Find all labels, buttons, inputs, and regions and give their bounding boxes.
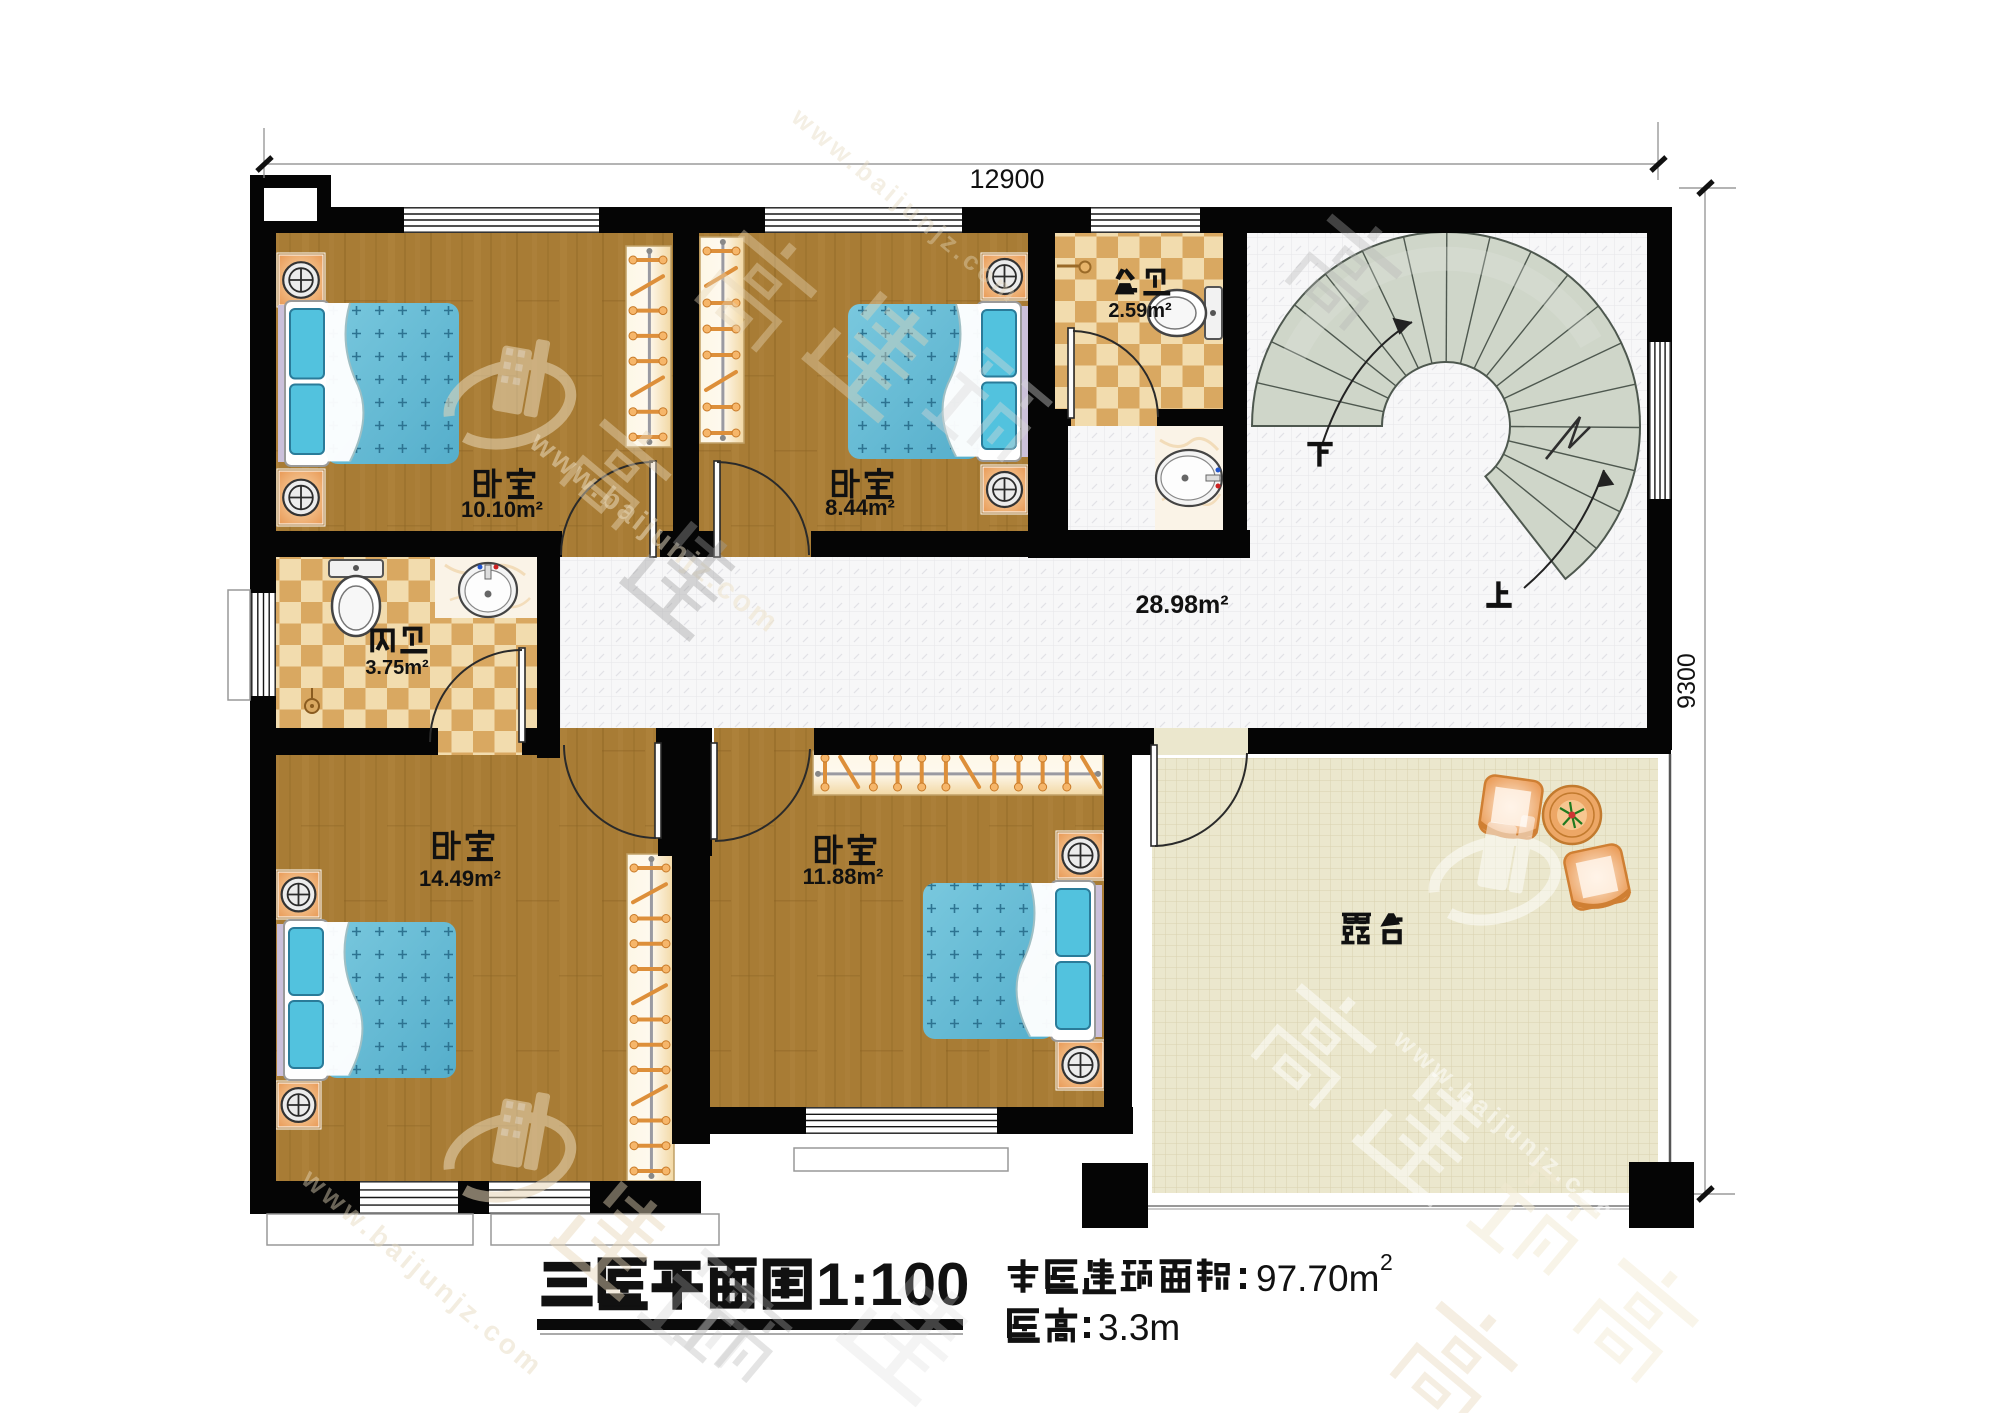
svg-text:3.3m: 3.3m — [1098, 1307, 1180, 1348]
svg-text:8.44m²: 8.44m² — [825, 495, 895, 520]
svg-text:14.49m²: 14.49m² — [419, 866, 501, 891]
svg-text:9300: 9300 — [1673, 653, 1701, 709]
svg-text:3.75m²: 3.75m² — [365, 657, 429, 679]
svg-text:97.70m: 97.70m — [1256, 1258, 1379, 1299]
svg-text:2.59m²: 2.59m² — [1108, 300, 1172, 322]
svg-text:12900: 12900 — [969, 164, 1044, 194]
svg-text:11.88m²: 11.88m² — [803, 864, 884, 889]
svg-text:2: 2 — [1380, 1249, 1393, 1275]
svg-text:10.10m²: 10.10m² — [461, 497, 543, 522]
svg-text:28.98m²: 28.98m² — [1135, 591, 1228, 619]
